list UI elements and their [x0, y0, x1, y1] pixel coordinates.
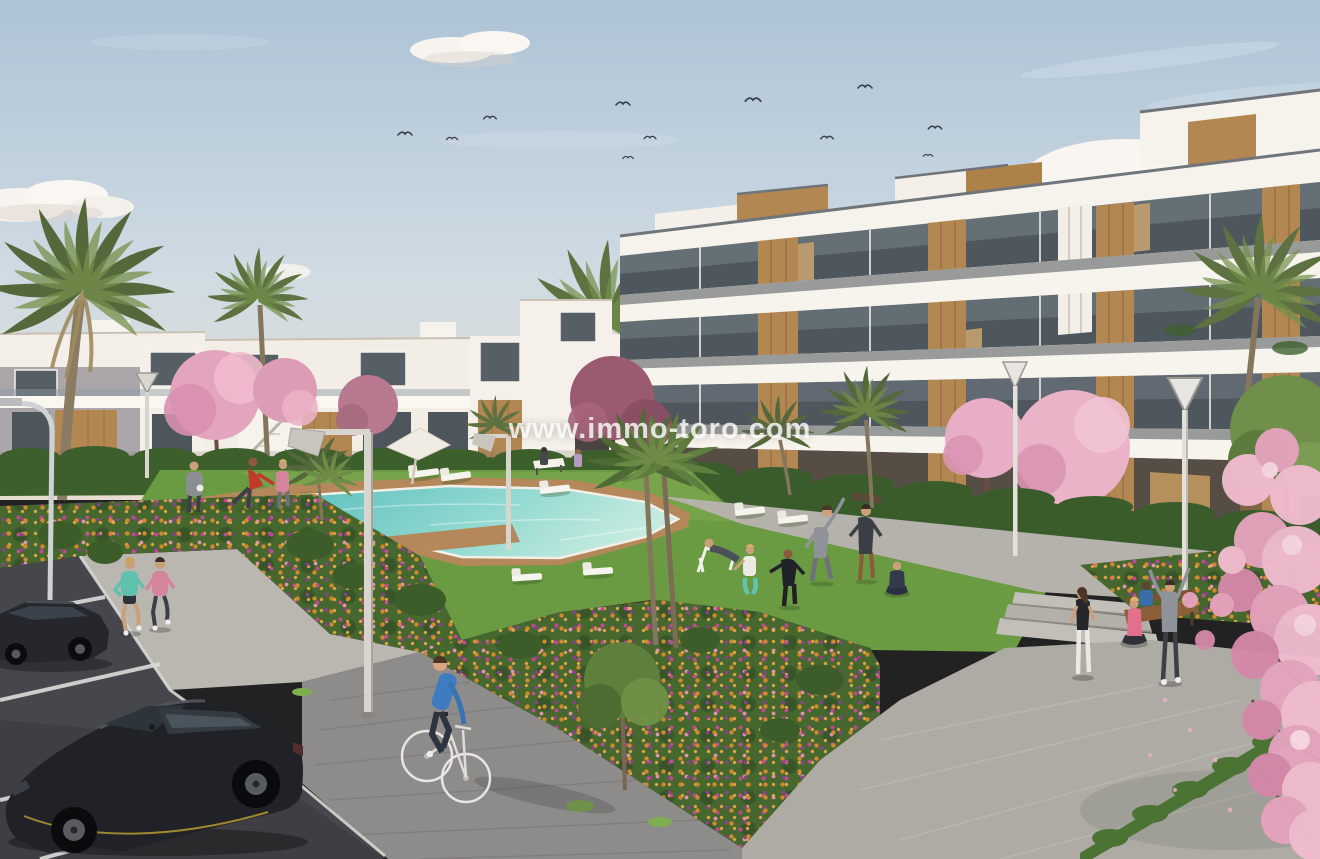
person-black-tracksuit [770, 550, 804, 611]
street-lamp-curved-left [0, 398, 52, 600]
pedestrians-walkway [540, 447, 582, 467]
person-hoodie-arms-up [1150, 568, 1189, 687]
watermark: www.immo-toro.com [509, 413, 812, 446]
person-yoga-seated [884, 562, 910, 598]
car-hatchback-foreground [6, 701, 308, 856]
person-reclining [698, 539, 738, 573]
person-red-stretching [233, 458, 274, 513]
street-lamp-right-small [1003, 362, 1027, 556]
person-gray-stretching [806, 498, 844, 587]
person-squatting-teal [734, 544, 756, 594]
jogger-teal [115, 557, 144, 637]
street-lamp-right-large [1168, 378, 1202, 592]
person-standing-woman [1071, 587, 1094, 681]
person-gray-towel [185, 462, 205, 516]
street-lamp-left-thin [136, 373, 158, 478]
car-sedan-background [0, 602, 112, 672]
street-lamp-mid [472, 433, 511, 550]
person-standing-dark [850, 504, 881, 585]
jogger-pink [146, 557, 174, 633]
architectural-rendering: www.immo-toro.com [0, 0, 1320, 859]
green-tree-front [578, 642, 669, 790]
